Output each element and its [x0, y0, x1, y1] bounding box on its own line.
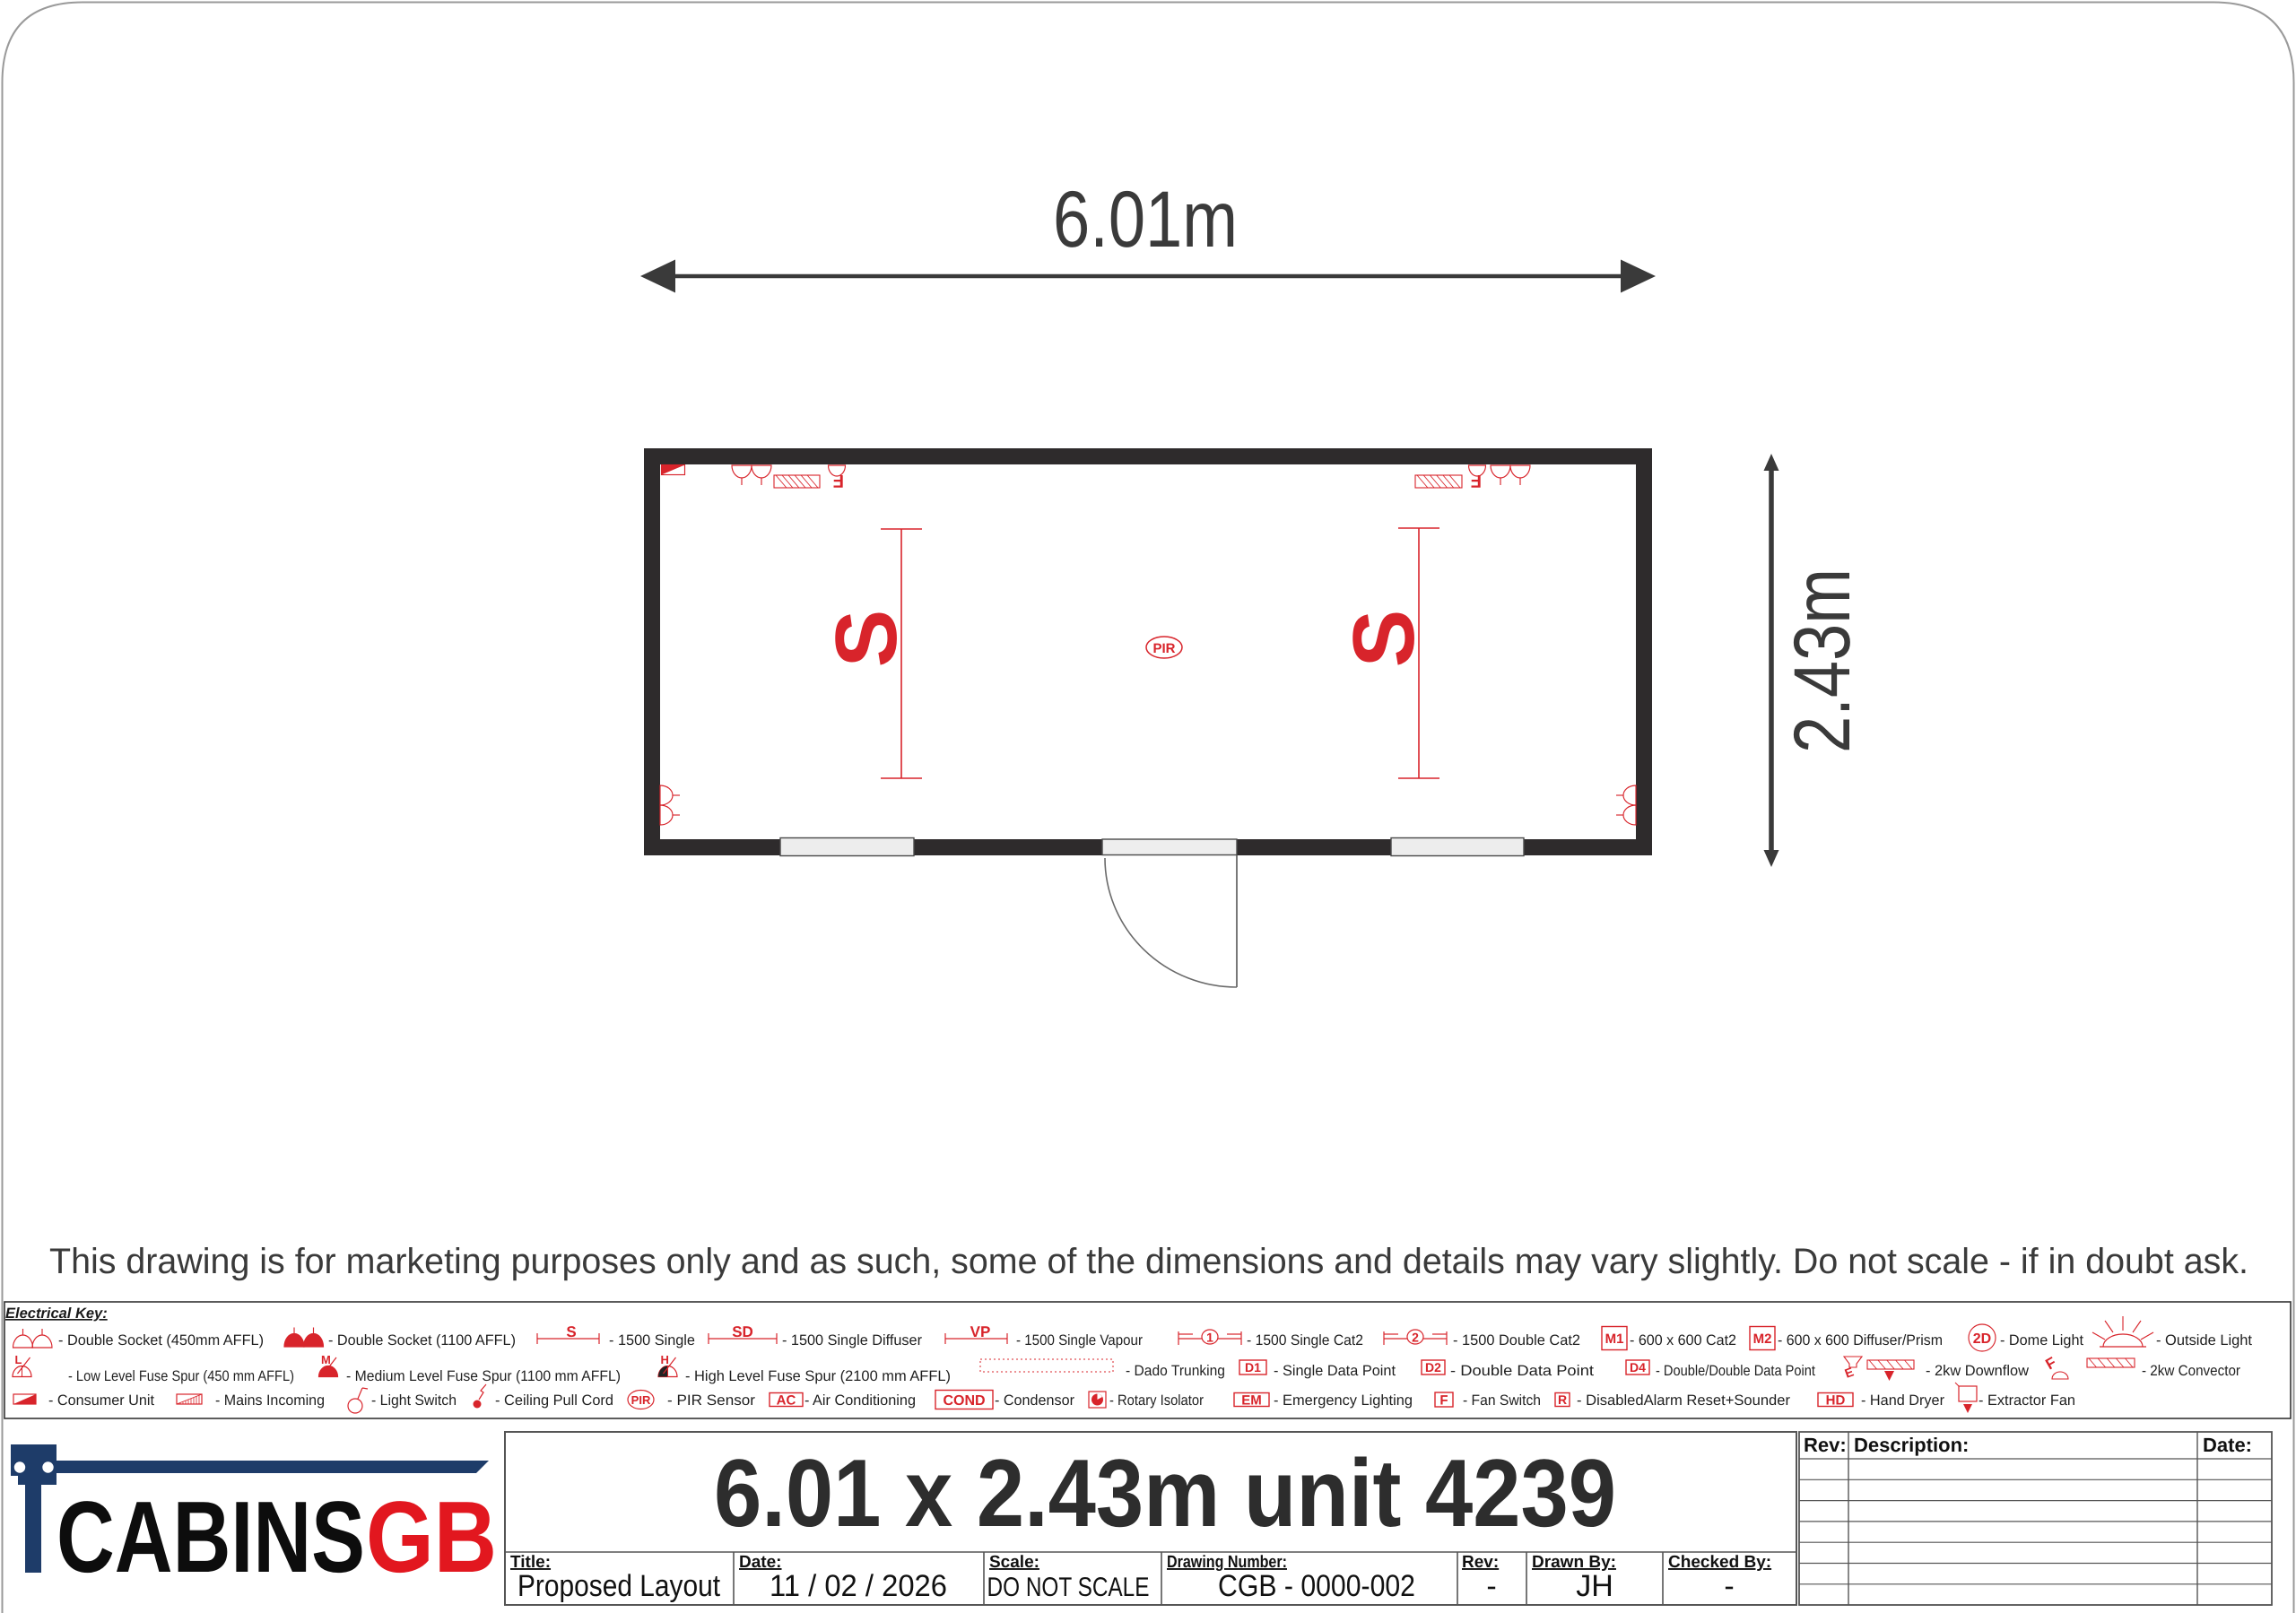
svg-text:D2: D2: [1425, 1360, 1441, 1375]
svg-text:2.43m: 2.43m: [1777, 568, 1866, 753]
svg-text:- 2kw Downflow: - 2kw Downflow: [1926, 1363, 2029, 1379]
svg-text:- Mains Incoming: - Mains Incoming: [215, 1392, 325, 1409]
svg-text:11 / 02 / 2026: 11 / 02 / 2026: [770, 1569, 947, 1603]
svg-text:6.01 x 2.43m unit 4239: 6.01 x 2.43m unit 4239: [714, 1439, 1616, 1547]
svg-text:- Double Socket (450mm AFFL): - Double Socket (450mm AFFL): [58, 1332, 264, 1349]
svg-text:- Hand Dryer: - Hand Dryer: [1861, 1392, 1944, 1409]
svg-text:EM: EM: [1241, 1392, 1262, 1408]
svg-text:F: F: [1471, 471, 1482, 490]
svg-text:- Fan Switch: - Fan Switch: [1463, 1392, 1541, 1409]
svg-text:H: H: [661, 1353, 669, 1366]
svg-text:Scale:: Scale:: [989, 1553, 1039, 1572]
svg-text:D1: D1: [1245, 1360, 1261, 1375]
svg-text:- 2kw Convector: - 2kw Convector: [2142, 1363, 2240, 1379]
svg-text:AC: AC: [777, 1392, 796, 1408]
svg-text:F: F: [2043, 1354, 2059, 1374]
svg-text:PIR: PIR: [631, 1393, 651, 1407]
svg-text:-: -: [1486, 1569, 1496, 1603]
svg-text:- Single Data Point: - Single Data Point: [1274, 1363, 1396, 1379]
svg-text:- Medium Level Fuse Spur (1100: - Medium Level Fuse Spur (1100 mm AFFL): [346, 1368, 621, 1384]
svg-text:- 1500 Single Cat2: - 1500 Single Cat2: [1247, 1332, 1363, 1349]
svg-text:- Light Switch: - Light Switch: [371, 1392, 457, 1409]
svg-text:E: E: [1843, 1365, 1856, 1381]
svg-text:- DisabledAlarm Reset+Sounder: - DisabledAlarm Reset+Sounder: [1577, 1392, 1791, 1409]
svg-text:- Rotary Isolator: - Rotary Isolator: [1109, 1392, 1204, 1409]
svg-text:Electrical Key:: Electrical Key:: [5, 1305, 108, 1322]
svg-text:VP: VP: [970, 1323, 991, 1340]
svg-text:M1: M1: [1605, 1331, 1624, 1347]
svg-text:M: M: [321, 1353, 331, 1366]
svg-text:- Extractor Fan: - Extractor Fan: [1979, 1392, 2075, 1409]
svg-text:- 1500 Single: - 1500 Single: [609, 1332, 695, 1349]
svg-text:CGB - 0000-002: CGB - 0000-002: [1218, 1569, 1415, 1603]
svg-text:This drawing is for marketing: This drawing is for marketing purposes o…: [49, 1242, 2248, 1281]
svg-text:R: R: [1558, 1392, 1567, 1407]
svg-text:- High Level Fuse Spur (2100 m: - High Level Fuse Spur (2100 mm AFFL): [685, 1368, 951, 1384]
svg-text:HD: HD: [1826, 1392, 1846, 1408]
svg-text:Date:: Date:: [2203, 1434, 2252, 1456]
svg-text:- Double Socket (1100 AFFL): - Double Socket (1100 AFFL): [328, 1332, 516, 1349]
svg-text:- Ceiling Pull Cord: - Ceiling Pull Cord: [495, 1392, 613, 1409]
svg-text:- 1500 Single Vapour: - 1500 Single Vapour: [1016, 1332, 1143, 1349]
svg-text:COND: COND: [943, 1393, 985, 1409]
svg-text:- Emergency Lighting: - Emergency Lighting: [1274, 1392, 1413, 1409]
svg-text:SD: SD: [732, 1323, 753, 1340]
svg-text:S: S: [566, 1323, 576, 1340]
svg-text:- Double/Double Data Point: - Double/Double Data Point: [1656, 1363, 1815, 1379]
svg-text:Checked By:: Checked By:: [1668, 1553, 1771, 1572]
svg-text:6.01m: 6.01m: [1053, 174, 1238, 264]
svg-text:- Condensor: - Condensor: [995, 1392, 1074, 1409]
svg-text:- 600 x 600 Cat2: - 600 x 600 Cat2: [1630, 1332, 1736, 1349]
svg-text:Proposed Layout: Proposed Layout: [517, 1569, 720, 1603]
svg-text:S: S: [817, 610, 915, 668]
svg-text:D4: D4: [1630, 1360, 1646, 1375]
svg-text:L: L: [15, 1353, 22, 1366]
svg-text:- 1500 Double Cat2: - 1500 Double Cat2: [1453, 1332, 1580, 1349]
svg-text:- Consumer Unit: - Consumer Unit: [48, 1392, 154, 1409]
svg-text:- Dome Light: - Dome Light: [2000, 1332, 2083, 1349]
svg-text:Rev:: Rev:: [1804, 1434, 1847, 1456]
svg-text:- Dado Trunking: - Dado Trunking: [1126, 1363, 1225, 1379]
svg-text:Description:: Description:: [1854, 1434, 1969, 1456]
svg-text:2D: 2D: [1973, 1331, 1991, 1347]
svg-text:-: -: [1724, 1569, 1734, 1603]
svg-text:S: S: [1335, 610, 1432, 668]
svg-text:- Air Conditioning: - Air Conditioning: [804, 1392, 916, 1409]
svg-text:- 600 x 600 Diffuser/Prism: - 600 x 600 Diffuser/Prism: [1778, 1332, 1943, 1349]
svg-text:PIR: PIR: [1152, 641, 1175, 656]
svg-text:- Double Data Point: - Double Data Point: [1450, 1363, 1594, 1379]
svg-text:2: 2: [1412, 1331, 1419, 1345]
svg-text:DO NOT SCALE: DO NOT SCALE: [987, 1573, 1150, 1602]
svg-text:- 1500 Single Diffuser: - 1500 Single Diffuser: [782, 1332, 922, 1349]
svg-text:- PIR Sensor: - PIR Sensor: [667, 1392, 756, 1409]
svg-text:1: 1: [1206, 1331, 1213, 1345]
svg-text:GB: GB: [366, 1480, 497, 1593]
svg-text:M2: M2: [1753, 1331, 1772, 1347]
svg-text:CABINS: CABINS: [57, 1480, 365, 1593]
svg-text:F: F: [1439, 1392, 1448, 1408]
svg-text:- Outside Light: - Outside Light: [2156, 1332, 2252, 1349]
svg-text:- Low Level Fuse Spur (450 mm: - Low Level Fuse Spur (450 mm AFFL): [68, 1368, 294, 1384]
svg-text:JH: JH: [1576, 1569, 1613, 1603]
svg-text:F: F: [833, 471, 844, 490]
